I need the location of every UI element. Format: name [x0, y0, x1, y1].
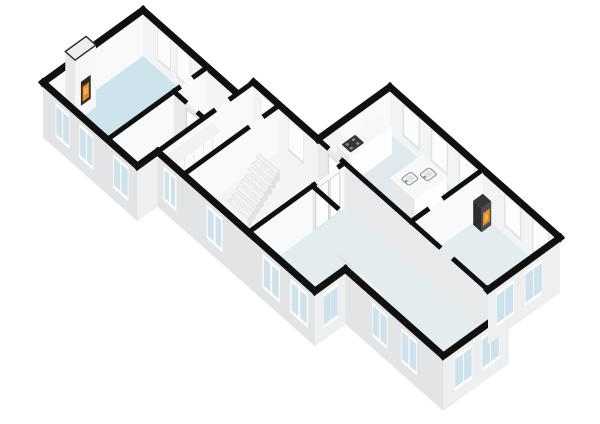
floor-plan-3d-render: [0, 0, 600, 424]
side-sw-window-1-mullion: [298, 288, 300, 318]
floor-plan-canvas: [0, 0, 600, 424]
main-sw-window-1-mullion: [409, 337, 410, 366]
hall-sw-window-mullion: [214, 213, 216, 243]
dining-se-window-2-mullion: [504, 289, 505, 318]
main-se-window-2-mullion: [463, 353, 464, 382]
side-sw-window-2-mullion: [270, 264, 272, 294]
main-sw-window-2-mullion: [379, 311, 380, 340]
living-sw-window-2-mullion: [86, 132, 87, 161]
dining-se-window-1-mullion: [533, 268, 534, 297]
corridor-sw-window-mullion: [169, 174, 171, 204]
living-sw-window-1-mullion: [62, 111, 63, 140]
hall-door-panel-2: [330, 172, 340, 219]
bath-sw-window-mullion: [120, 163, 121, 192]
